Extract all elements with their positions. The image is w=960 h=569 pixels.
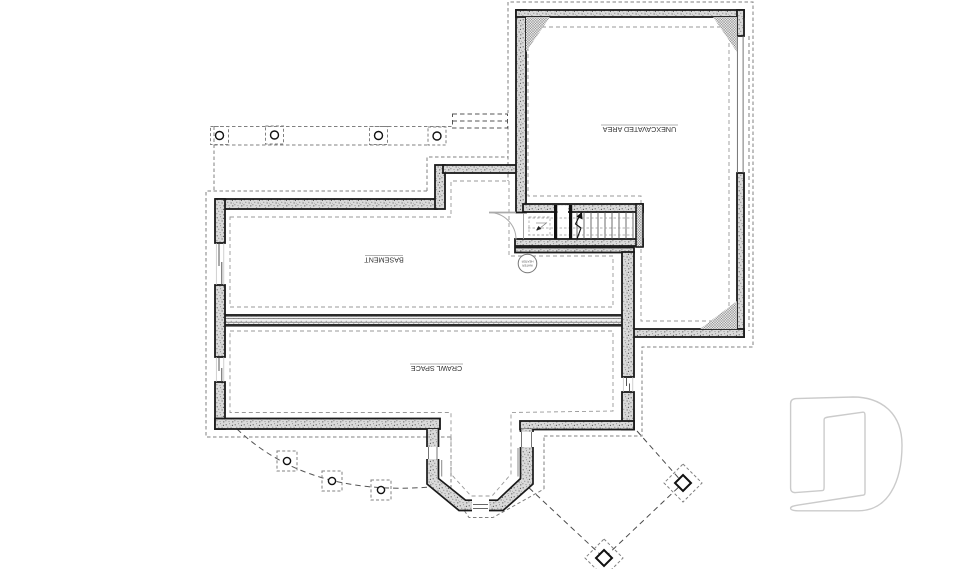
svg-text:UNEXCAVATED AREA: UNEXCAVATED AREA <box>603 125 677 134</box>
svg-text:BASEMENT: BASEMENT <box>364 256 404 265</box>
svg-text:HEATER: HEATER <box>521 260 534 264</box>
svg-text:CRAWL SPACE: CRAWL SPACE <box>411 364 462 373</box>
